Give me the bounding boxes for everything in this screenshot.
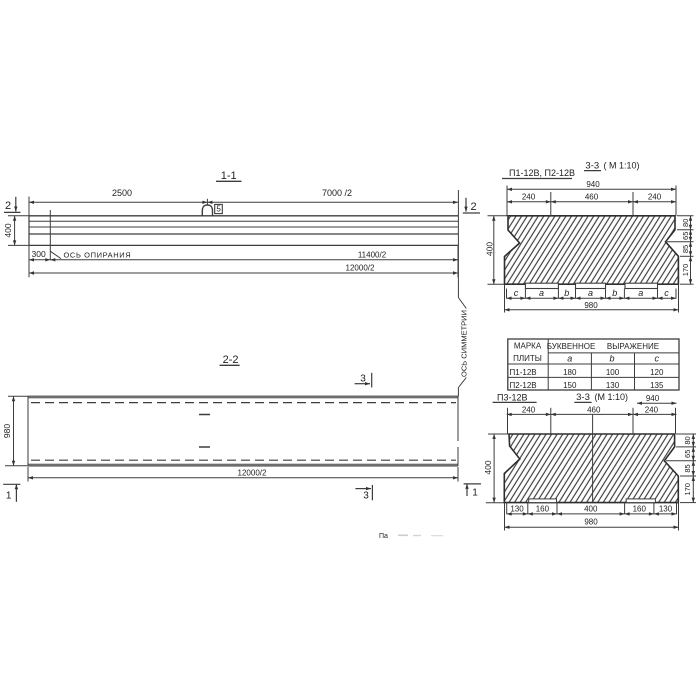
- svg-text:85: 85: [681, 245, 690, 253]
- svg-text:b: b: [612, 288, 617, 298]
- svg-text:150: 150: [563, 381, 577, 390]
- svg-text:5: 5: [216, 205, 221, 214]
- svg-text:П1-12В: П1-12В: [510, 368, 537, 377]
- svg-text:3: 3: [363, 490, 369, 501]
- svg-text:240: 240: [645, 406, 659, 415]
- svg-text:2-2: 2-2: [223, 354, 239, 366]
- svg-text:120: 120: [650, 368, 664, 377]
- svg-text:160: 160: [536, 505, 550, 514]
- svg-text:3-3: 3-3: [585, 161, 599, 172]
- svg-text:460: 460: [585, 193, 599, 202]
- svg-text:П2-12В: П2-12В: [510, 381, 537, 390]
- svg-text:85: 85: [683, 464, 692, 472]
- svg-text:940: 940: [646, 394, 660, 403]
- svg-text:400: 400: [485, 242, 495, 256]
- svg-text:80: 80: [683, 436, 692, 444]
- svg-text:980: 980: [2, 424, 12, 438]
- svg-text:80: 80: [681, 219, 690, 227]
- svg-text:130: 130: [606, 381, 620, 390]
- svg-text:940: 940: [586, 180, 600, 189]
- svg-text:400: 400: [584, 505, 598, 514]
- svg-text:12000/2: 12000/2: [346, 264, 375, 273]
- svg-text:460: 460: [587, 406, 601, 415]
- svg-text:240: 240: [522, 406, 536, 415]
- svg-text:2: 2: [5, 200, 11, 212]
- svg-text:300: 300: [32, 249, 46, 259]
- svg-text:135: 135: [650, 381, 664, 390]
- svg-text:7000 /2: 7000 /2: [322, 188, 352, 198]
- svg-text:65: 65: [681, 232, 690, 240]
- svg-text:160: 160: [633, 505, 647, 514]
- svg-text:ОСЬ СИММЕТРИИ: ОСЬ СИММЕТРИИ: [460, 310, 469, 377]
- svg-text:(М 1:10): (М 1:10): [595, 392, 629, 402]
- svg-text:980: 980: [584, 301, 598, 310]
- svg-text:a: a: [567, 354, 572, 364]
- svg-text:170: 170: [683, 483, 692, 496]
- svg-text:1: 1: [472, 488, 478, 499]
- svg-text:a: a: [638, 288, 643, 298]
- svg-text:ВЫРАЖЕНИЕ: ВЫРАЖЕНИЕ: [607, 342, 659, 351]
- svg-text:2: 2: [470, 201, 476, 213]
- svg-text:МАРКА: МАРКА: [514, 342, 542, 351]
- svg-text:12000/2: 12000/2: [238, 469, 267, 478]
- svg-text:( М 1:10): ( М 1:10): [604, 161, 640, 171]
- svg-text:65: 65: [683, 450, 692, 458]
- svg-text:БУКВЕННОЕ: БУКВЕННОЕ: [547, 342, 596, 351]
- svg-text:170: 170: [681, 264, 690, 277]
- svg-text:Па: Па: [379, 533, 388, 540]
- svg-text:c: c: [664, 288, 669, 298]
- svg-text:a: a: [588, 288, 593, 298]
- svg-text:130: 130: [510, 505, 524, 514]
- svg-text:b: b: [564, 288, 569, 298]
- svg-text:980: 980: [584, 518, 598, 527]
- svg-text:c: c: [514, 288, 519, 298]
- svg-text:100: 100: [606, 368, 620, 377]
- svg-text:П3-12В: П3-12В: [497, 392, 528, 402]
- svg-text:1-1: 1-1: [221, 170, 237, 182]
- svg-text:400: 400: [483, 460, 493, 474]
- svg-text:400: 400: [3, 223, 13, 237]
- svg-text:П1-12В, П2-12В: П1-12В, П2-12В: [509, 168, 575, 178]
- svg-text:b: b: [609, 354, 614, 364]
- svg-text:ОСЬ ОПИРАНИЯ: ОСЬ ОПИРАНИЯ: [64, 250, 132, 259]
- svg-text:240: 240: [522, 193, 536, 202]
- svg-text:3-3: 3-3: [576, 392, 590, 403]
- svg-text:ПЛИТЫ: ПЛИТЫ: [513, 354, 542, 363]
- svg-text:2500: 2500: [112, 188, 132, 198]
- svg-text:a: a: [539, 288, 544, 298]
- svg-text:11400/2: 11400/2: [358, 251, 387, 260]
- svg-text:1: 1: [6, 491, 12, 502]
- svg-text:180: 180: [563, 368, 577, 377]
- svg-text:130: 130: [659, 505, 673, 514]
- svg-text:240: 240: [648, 193, 662, 202]
- svg-text:c: c: [655, 354, 660, 364]
